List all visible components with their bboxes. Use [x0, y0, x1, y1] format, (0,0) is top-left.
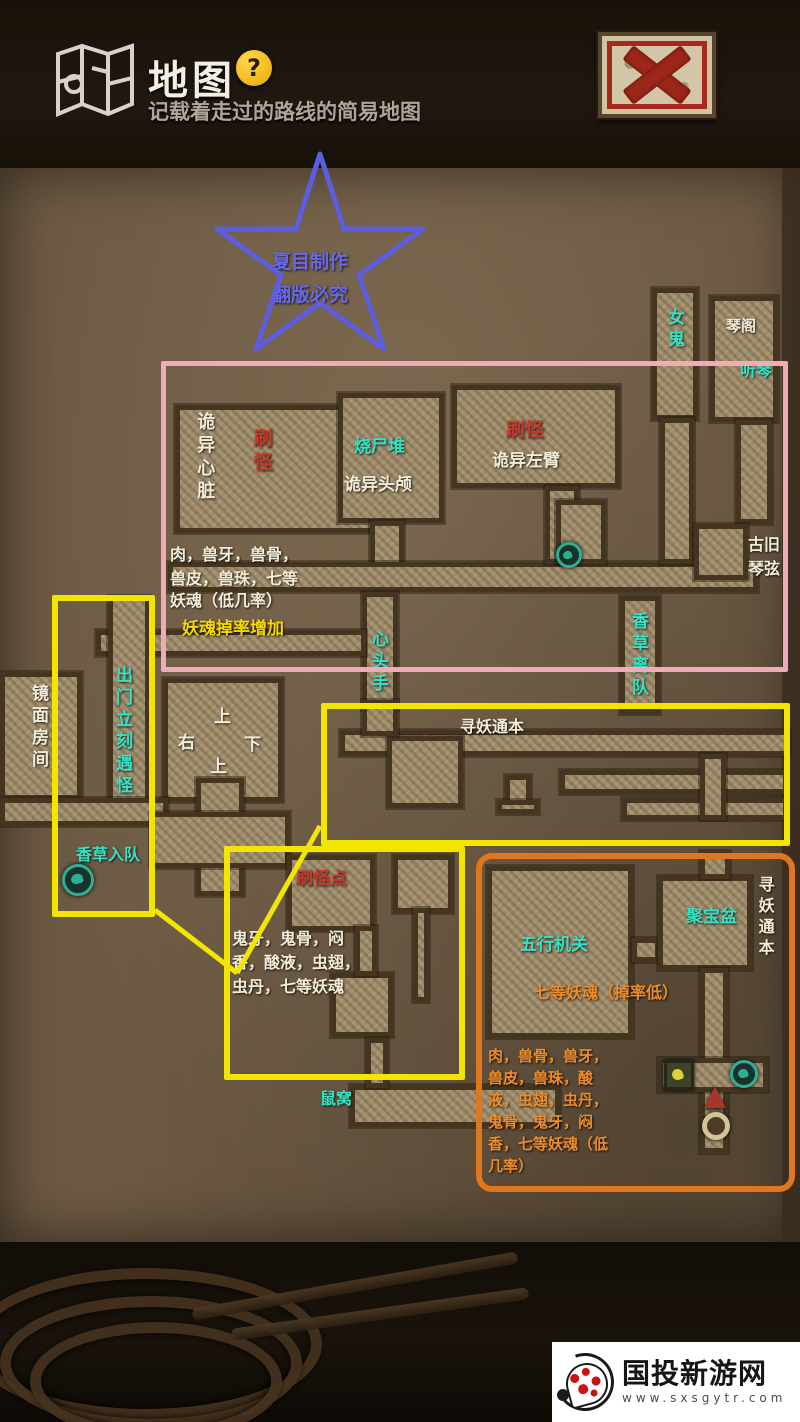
- highlight-box-yellow-lower: [224, 846, 465, 1080]
- direction-up-1: 上: [214, 706, 231, 729]
- direction-right: 右: [178, 732, 195, 755]
- room-label-mirror-room: 镜面房间: [26, 684, 49, 772]
- star-text-line2: 翻版必究: [272, 283, 348, 309]
- highlight-box-yellow-left: [52, 595, 155, 917]
- watermark-url: www.sxsgytr.com: [622, 1391, 786, 1405]
- site-watermark: 国投新游网 www.sxsgytr.com: [552, 1342, 800, 1422]
- close-button[interactable]: [598, 32, 716, 118]
- room-label-rat-nest: 鼠窝: [320, 1088, 352, 1110]
- game-map-screen: 地图 ? 记载着走过的路线的简易地图 夏目制作翻版必究诡异心脏刷怪烧尸堆诡异头颅…: [0, 0, 800, 1422]
- direction-up-2: 上: [210, 756, 227, 779]
- star-text-line1: 夏目制作: [272, 250, 348, 276]
- map-icon: [52, 42, 138, 118]
- watermark-site-name: 国投新游网: [622, 1360, 786, 1388]
- ladybug-logo-icon: [556, 1353, 614, 1411]
- room-label-female-ghost: 女鬼: [662, 308, 685, 352]
- room-label-qin-pavilion: 琴阁: [726, 316, 756, 336]
- help-icon[interactable]: ?: [236, 50, 272, 86]
- highlight-box-orange: [476, 853, 795, 1192]
- highlight-box-yellow-wide: [321, 703, 790, 846]
- highlight-box-pink: [161, 361, 788, 672]
- direction-down: 下: [244, 734, 261, 757]
- page-subtitle: 记载着走过的路线的简易地图: [148, 96, 421, 126]
- map-canvas: 夏目制作翻版必究诡异心脏刷怪烧尸堆诡异头颅刷怪诡异左臂女鬼琴阁听琴古旧琴弦肉，兽…: [0, 168, 800, 1242]
